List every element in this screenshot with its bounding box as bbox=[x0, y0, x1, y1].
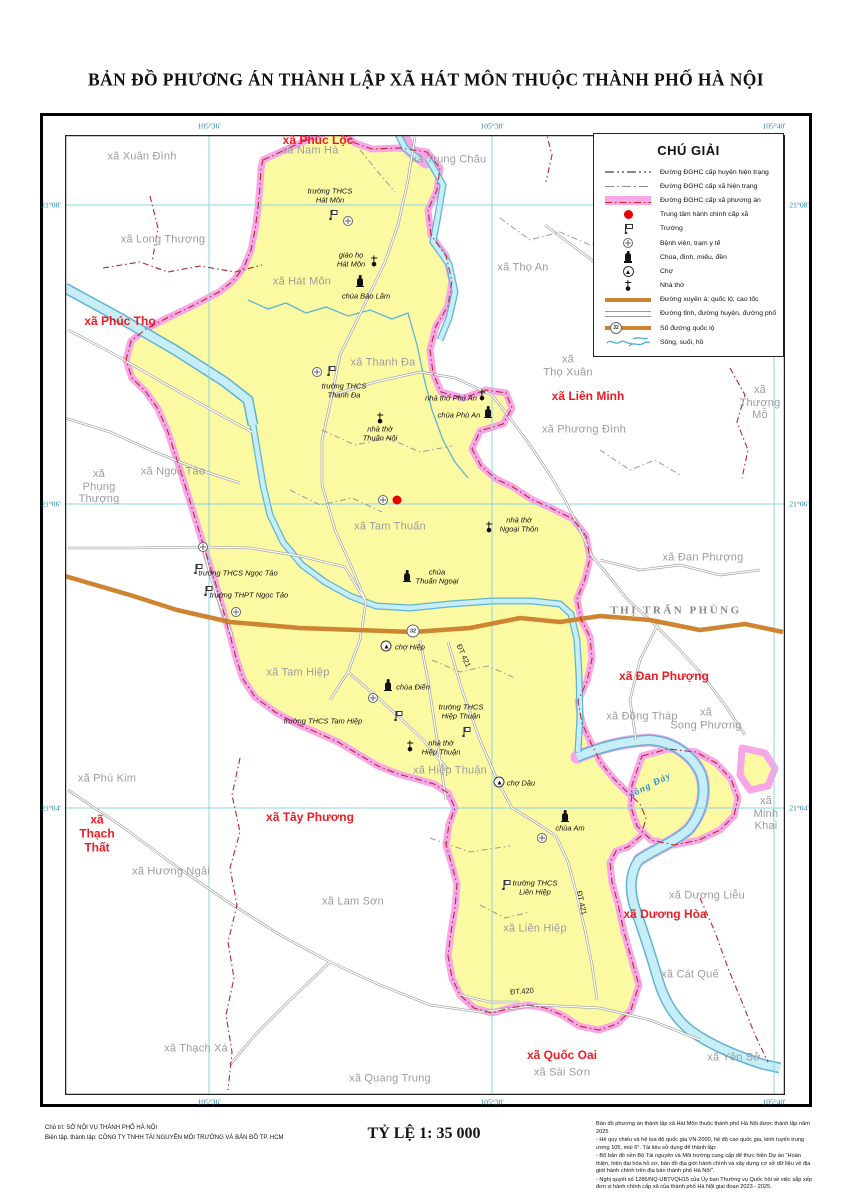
legend-item: Sông, suối, hồ bbox=[594, 335, 783, 349]
pagoda-icon bbox=[485, 409, 491, 417]
legend-item: Đường tỉnh, đường huyện, đường phố bbox=[594, 307, 783, 321]
lat-tick: 21°08' bbox=[41, 201, 60, 210]
school-icon bbox=[462, 727, 471, 737]
church-icon bbox=[624, 280, 632, 291]
hospital-icon bbox=[231, 607, 241, 617]
market-icon bbox=[381, 641, 392, 652]
lon-tick: 105°38' bbox=[480, 1098, 503, 1107]
river-icon bbox=[605, 335, 651, 349]
lat-tick: 21°08' bbox=[789, 201, 808, 210]
legend-item: Đường xuyên á; quốc lộ; cao tốc bbox=[594, 293, 783, 307]
commune-center-icon bbox=[393, 496, 402, 505]
church-icon bbox=[370, 256, 378, 267]
school-icon bbox=[327, 366, 336, 376]
market-icon bbox=[494, 777, 505, 788]
church-icon bbox=[376, 413, 384, 424]
legend-item: Chùa, đình, miếu, đền bbox=[594, 250, 783, 264]
pagoda-icon bbox=[562, 813, 568, 821]
hospital-icon bbox=[537, 833, 547, 843]
map-notes: Bản đồ phương án thành lập xã Hát Môn th… bbox=[596, 1121, 812, 1193]
pagoda-icon bbox=[625, 253, 631, 261]
legend-item: Bệnh viện, trạm y tế bbox=[594, 236, 783, 250]
school-icon bbox=[329, 210, 338, 220]
road-line-icon bbox=[605, 311, 651, 317]
legend-item: 32 Số đường quốc lộ bbox=[594, 321, 783, 335]
church-icon bbox=[478, 390, 486, 401]
legend: CHÚ GIẢI Đường ĐGHC cấp huyện hiện trạng… bbox=[593, 133, 784, 357]
lat-tick: 21°04' bbox=[789, 804, 808, 813]
school-icon bbox=[502, 880, 511, 890]
credit-line: Chủ trì: SỞ NỘI VỤ THÀNH PHỐ HÀ NỘI bbox=[45, 1124, 345, 1134]
pagoda-icon bbox=[357, 278, 363, 286]
lon-tick: 105°40' bbox=[762, 1098, 785, 1107]
legend-item: Trung tâm hành chính cấp xã bbox=[594, 208, 783, 222]
district-boundary-line-icon bbox=[605, 171, 651, 173]
lat-tick: 21°06' bbox=[789, 500, 808, 509]
school-icon bbox=[204, 586, 213, 596]
legend-item: Chợ bbox=[594, 264, 783, 278]
route-number-badge: 32 bbox=[407, 625, 420, 638]
pagoda-icon bbox=[404, 573, 410, 581]
credit-line: Biên tập, thành lập: CÔNG TY TNHH TÀI NG… bbox=[45, 1134, 345, 1144]
church-icon bbox=[485, 522, 493, 533]
lon-tick: 105°36' bbox=[197, 122, 220, 131]
note-line: - Hệ quy chiếu và hệ tọa độ quốc gia VN-… bbox=[596, 1137, 812, 1152]
note-line: - Bộ bản đồ nền Bộ Tài nguyên và Môi trư… bbox=[596, 1153, 812, 1176]
legend-item: Trường bbox=[594, 222, 783, 236]
hat-mon-commune-area bbox=[126, 135, 646, 1030]
lon-tick: 105°40' bbox=[762, 122, 785, 131]
lon-tick: 105°38' bbox=[480, 122, 503, 131]
page-title: BẢN ĐỒ PHƯƠNG ÁN THÀNH LẬP XÃ HÁT MÔN TH… bbox=[88, 70, 764, 91]
highway-line-icon bbox=[605, 298, 651, 303]
route-number-icon: 32 bbox=[605, 326, 651, 330]
church-icon bbox=[406, 741, 414, 752]
commune-area-river-strip bbox=[740, 748, 775, 790]
market-icon bbox=[623, 266, 634, 277]
commune-boundary-line-icon bbox=[605, 186, 651, 188]
credits: Chủ trì: SỞ NỘI VỤ THÀNH PHỐ HÀ NỘI Biên… bbox=[45, 1124, 345, 1143]
school-icon bbox=[194, 564, 203, 574]
lat-tick: 21°04' bbox=[41, 804, 60, 813]
hospital-icon bbox=[378, 495, 388, 505]
scale-label: TỶ LỆ 1: 35 000 bbox=[368, 1125, 481, 1143]
pagoda-icon bbox=[385, 682, 391, 690]
legend-item: Đường ĐGHC cấp xã phương án bbox=[594, 193, 783, 207]
hospital-icon bbox=[623, 238, 633, 248]
hospital-icon bbox=[343, 216, 353, 226]
lon-tick: 105°36' bbox=[197, 1098, 220, 1107]
hospital-icon bbox=[368, 693, 378, 703]
school-icon bbox=[624, 224, 633, 234]
note-line: - Nghị quyết số 1286/NQ-UBTVQH15 của Ủy … bbox=[596, 1177, 812, 1192]
legend-title: CHÚ GIẢI bbox=[594, 143, 783, 158]
planned-boundary-band-icon bbox=[605, 196, 651, 205]
legend-item: Nhà thờ bbox=[594, 279, 783, 293]
legend-item: Đường ĐGHC cấp huyện hiện trạng bbox=[594, 165, 783, 179]
map-sheet: BẢN ĐỒ PHƯƠNG ÁN THÀNH LẬP XÃ HÁT MÔN TH… bbox=[0, 0, 850, 1202]
legend-item: Đường ĐGHC cấp xã hiện trạng bbox=[594, 179, 783, 193]
lat-tick: 21°06' bbox=[41, 500, 60, 509]
hospital-icon bbox=[312, 367, 322, 377]
commune-center-icon bbox=[624, 210, 633, 219]
note-line: Bản đồ phương án thành lập xã Hát Môn th… bbox=[596, 1121, 812, 1136]
hospital-icon bbox=[198, 542, 208, 552]
school-icon bbox=[394, 711, 403, 721]
